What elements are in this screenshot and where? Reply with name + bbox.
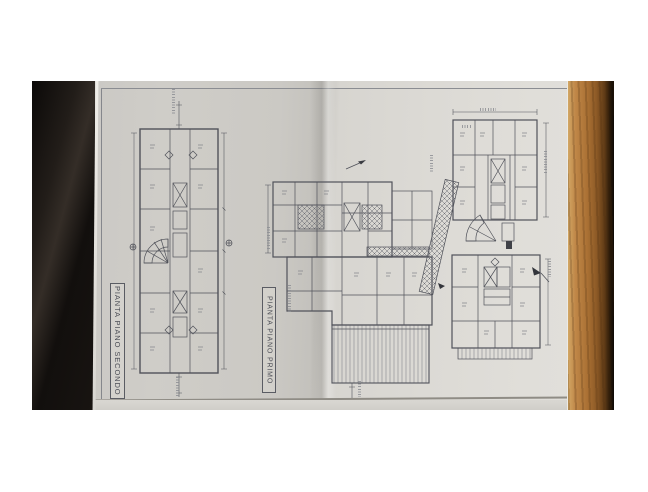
column-marker-icon [491,258,499,266]
hatched-walkway [367,247,429,256]
elevator-icon [484,267,497,287]
illegible-annotation [267,227,270,249]
terrace-decking [332,325,429,383]
stair-hatch [298,205,324,229]
elevator-icon [344,203,360,231]
stair-hatch [362,205,382,229]
illegible-annotation [172,89,175,115]
screenshot-canvas: { "labels": { "plan_secondo": "PIANTA PI… [0,0,648,492]
dimension-line [176,101,182,129]
plan-primo-right [438,109,551,359]
illegible-annotation [480,108,496,111]
illegible-annotation [176,377,179,397]
illegible-annotation [544,151,547,173]
north-arrow-icon [346,160,366,169]
plan-secondo [130,101,232,397]
terrace-decking [458,348,532,359]
wooden-table [568,81,614,410]
paper-under-sheet [92,400,570,411]
illegible-annotation [430,155,433,173]
entrance-arrow-icon [438,283,445,289]
floor-plan-photo: PIANTA PIANO SECONDO PIANTA PIANO PRIMO [32,81,614,410]
dimension-line [349,383,355,399]
plan-primo-main [265,160,459,399]
illegible-annotation [548,261,551,277]
illegible-annotation [358,381,361,397]
plan-title-primo: PIANTA PIANO PRIMO [262,287,276,393]
illegible-annotation [288,285,291,313]
elevator-icon [491,159,505,183]
plan-title-secondo: PIANTA PIANO SECONDO [110,283,125,399]
section-marker-icon [130,240,232,250]
dark-table-edge [32,81,95,410]
room-label-marks [150,133,527,350]
door-mark [506,241,512,249]
illegible-annotation [462,125,472,128]
